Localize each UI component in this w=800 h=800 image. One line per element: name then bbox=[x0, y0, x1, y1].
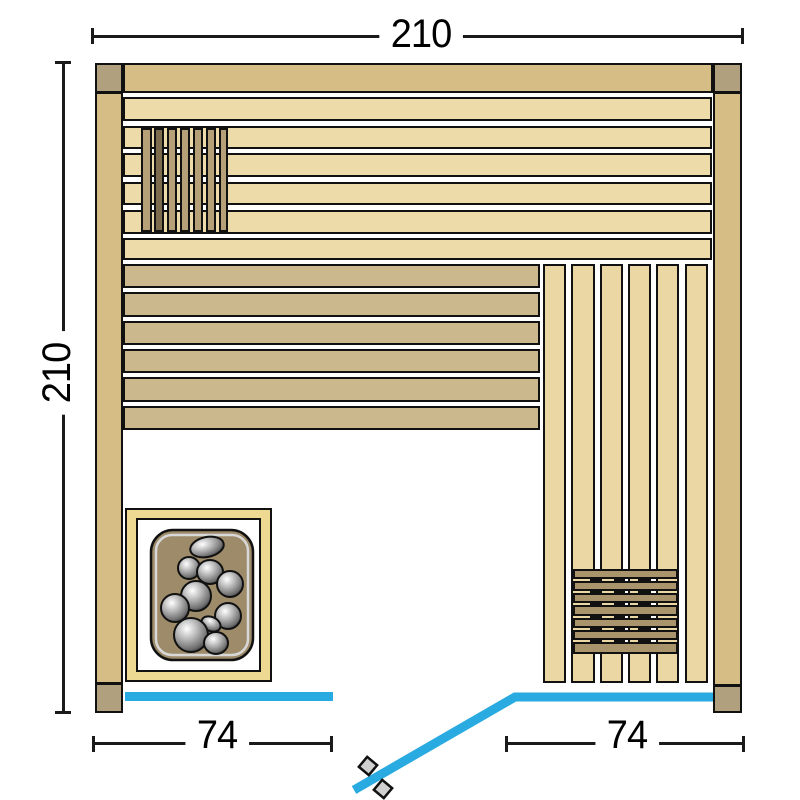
dimension-left-tick-bottom bbox=[55, 711, 71, 714]
duckboard-slat bbox=[573, 630, 678, 640]
duckboard-dash bbox=[614, 578, 625, 581]
backrest-slat bbox=[141, 128, 152, 232]
duckboard-dash bbox=[590, 639, 601, 642]
dimension-top-label: 210 bbox=[379, 12, 462, 56]
duckboard-dash bbox=[638, 615, 649, 618]
backrest-slat bbox=[154, 128, 164, 232]
duckboard-dash bbox=[590, 627, 601, 630]
backrest-slat bbox=[180, 128, 190, 232]
lower-bench-plank bbox=[123, 377, 540, 402]
lower-bench-plank bbox=[123, 406, 540, 430]
duckboard-slat bbox=[573, 581, 678, 591]
duckboard-dash bbox=[638, 578, 649, 581]
duckboard-slat bbox=[573, 605, 678, 616]
duckboard-dash bbox=[638, 639, 649, 642]
post-top-right bbox=[713, 63, 742, 93]
duckboard-dash bbox=[638, 590, 649, 593]
duckboard-dash bbox=[614, 615, 625, 618]
duckboard-slat bbox=[573, 569, 678, 579]
dimension-top-tick-left bbox=[91, 28, 94, 44]
side-bench-plank bbox=[685, 264, 708, 683]
duckboard-dash bbox=[614, 627, 625, 630]
upper-bench-plank bbox=[123, 238, 712, 260]
dimension-bottom-left-tick-right bbox=[330, 736, 333, 752]
duckboard-dash bbox=[614, 639, 625, 642]
upper-bench-plank bbox=[123, 97, 712, 121]
duckboard-dash bbox=[638, 627, 649, 630]
backrest-slat bbox=[167, 128, 177, 232]
glass-front-left bbox=[125, 692, 333, 701]
door-handle bbox=[374, 780, 392, 798]
lower-bench-plank bbox=[123, 349, 540, 373]
duckboard-slat bbox=[573, 642, 678, 654]
dimension-bottom-right-tick-left bbox=[505, 736, 508, 752]
heater-inner bbox=[136, 518, 261, 672]
wall-left bbox=[95, 92, 123, 684]
dimension-left-tick-top bbox=[55, 61, 71, 64]
duckboard-dash bbox=[590, 602, 601, 605]
backrest-slat bbox=[206, 128, 216, 232]
duckboard-dash bbox=[614, 590, 625, 593]
duckboard-dash bbox=[590, 590, 601, 593]
duckboard-dash bbox=[638, 602, 649, 605]
dimension-bottom-left-label: 74 bbox=[185, 713, 248, 757]
dimension-left-label: 210 bbox=[35, 331, 79, 414]
wall-top bbox=[123, 63, 713, 93]
backrest-slat bbox=[219, 128, 228, 232]
dimension-bottom-right-label: 74 bbox=[595, 713, 658, 757]
door-handle bbox=[359, 757, 377, 775]
post-bottom-left bbox=[95, 683, 123, 713]
post-bottom-right bbox=[713, 685, 742, 713]
sauna-floorplan-diagram: 210 210 74 74 bbox=[0, 0, 800, 800]
post-top-left bbox=[95, 63, 123, 93]
wall-right bbox=[713, 92, 742, 686]
duckboard-slat bbox=[573, 593, 678, 603]
duckboard-dash bbox=[590, 615, 601, 618]
side-bench-plank bbox=[543, 264, 566, 683]
lower-bench-plank bbox=[123, 292, 540, 317]
lower-bench-plank bbox=[123, 264, 540, 288]
dimension-bottom-right-tick-right bbox=[742, 736, 745, 752]
dimension-top-tick-right bbox=[741, 28, 744, 44]
lower-bench-plank bbox=[123, 321, 540, 345]
duckboard-dash bbox=[614, 602, 625, 605]
duckboard-slat bbox=[573, 618, 678, 628]
duckboard-dash bbox=[590, 578, 601, 581]
dimension-bottom-left-tick-left bbox=[92, 736, 95, 752]
backrest-slat bbox=[193, 128, 203, 232]
